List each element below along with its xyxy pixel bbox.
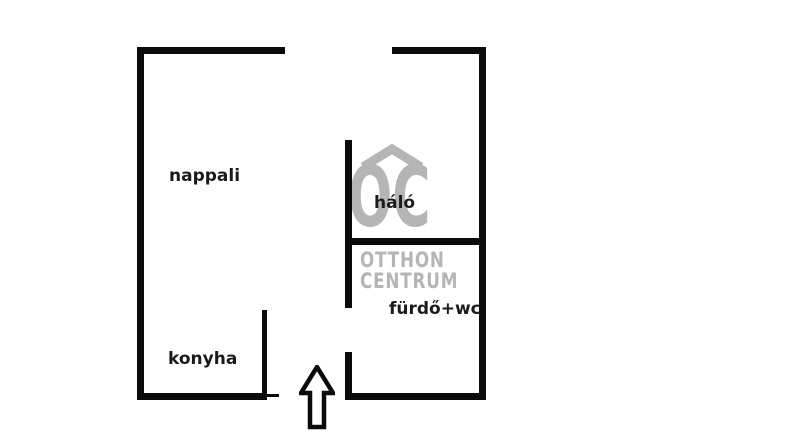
wall-exterior-left: [137, 47, 144, 400]
room-label-konyha: konyha: [168, 351, 237, 368]
wall-konyha-partition: [262, 310, 267, 397]
wall-exterior-right: [479, 47, 486, 400]
watermark-line2: CENTRUM: [360, 271, 458, 292]
room-label-nappali: nappali: [169, 168, 240, 185]
wall-furdo-top: [345, 238, 486, 245]
entrance-up-arrow-icon: [299, 365, 335, 430]
room-label-furdo-wc: fürdő+wc: [389, 301, 481, 318]
wall-furdo-left-upper: [345, 245, 352, 308]
wall-tick-entrance: [352, 395, 368, 399]
wall-nappali-halo-divider: [345, 140, 352, 243]
floorplan-canvas: OC OTTHON CENTRUM nappali háló fürdő+wc …: [0, 0, 795, 436]
wall-exterior-top-left: [137, 47, 285, 54]
wall-exterior-bottom-left: [137, 393, 267, 400]
wall-tick-konyha: [262, 394, 279, 397]
watermark-line1: OTTHON: [360, 250, 445, 271]
wall-exterior-top-right: [392, 47, 486, 54]
wall-furdo-left-lower: [345, 352, 352, 400]
room-label-halo: háló: [374, 195, 415, 212]
